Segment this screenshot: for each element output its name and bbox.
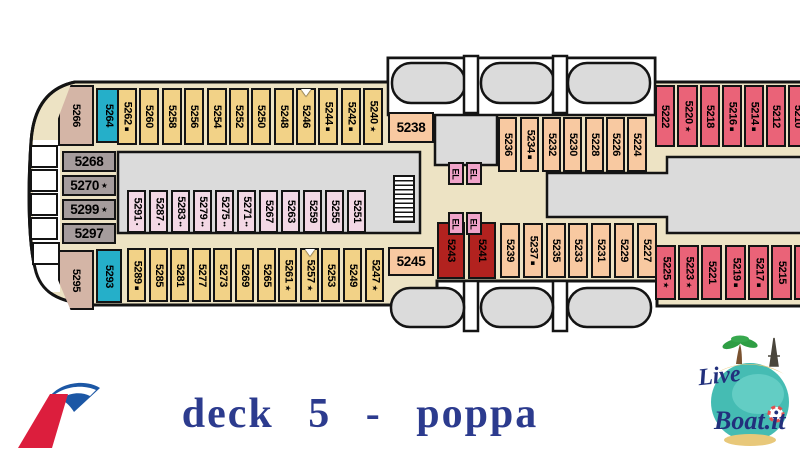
cabin-marker-icon: ■ (755, 283, 763, 288)
cabin-number: 5241 (477, 239, 488, 262)
cabin-marker-icon: • (155, 223, 163, 226)
cabin-5226[interactable]: 5226 (606, 117, 625, 172)
cabin-number: 5233 (573, 239, 584, 262)
cabin-marker-icon: ★ (371, 284, 379, 291)
cabin-number: 5263 (285, 200, 296, 223)
cabin-number: 5252 (234, 105, 245, 128)
triangle-marker-icon (301, 89, 311, 96)
cabin-number: 5210 (793, 104, 800, 127)
cabin-5223[interactable]: 5223★ (678, 245, 699, 300)
cabin-5251[interactable]: 5251 (347, 190, 366, 233)
deck-plan-page: 526652645262■526052585256525452525250524… (0, 0, 800, 457)
cabin-number: 5228 (589, 133, 600, 156)
cabin-5252[interactable]: 5252 (229, 88, 249, 145)
liveboat-text-boat: Boat.it (714, 408, 786, 434)
gray-block (435, 112, 497, 165)
cabin-number: 5287 (153, 198, 164, 221)
cabin-number: 5267 (263, 200, 274, 223)
cabin-number: 5283 (175, 196, 186, 219)
davit-post (464, 281, 478, 331)
cabin-5221[interactable]: 5221 (701, 245, 722, 300)
cabin-5269[interactable]: 5269 (235, 248, 254, 302)
cabin-5227[interactable]: 5227 (637, 223, 657, 278)
cabin-marker-icon: ■ (324, 127, 332, 132)
cabin-5281[interactable]: 5281 (170, 248, 189, 302)
cabin-number: 5248 (279, 105, 290, 128)
cabin-5287[interactable]: 5287• (149, 190, 168, 233)
cabin-5240[interactable]: 5240★ (363, 88, 383, 145)
cabin-5259[interactable]: 5259 (303, 190, 322, 233)
elevator-label: EL (450, 218, 460, 229)
cabin-number: 5249 (347, 263, 358, 286)
lifeboat (568, 288, 651, 327)
cabin-5261[interactable]: 5261★ (278, 248, 297, 302)
cabin-number: 5271 (241, 196, 252, 219)
cabin-number: 5251 (351, 200, 362, 223)
cabin-5222[interactable]: 5222 (655, 85, 675, 147)
cabin-number: 5285 (153, 263, 164, 286)
cabin-5257[interactable]: 5257★ (300, 248, 319, 302)
cabin-5275[interactable]: 5275•• (215, 190, 234, 233)
cabin-5215[interactable]: 5215 (771, 245, 792, 300)
cabin-5245[interactable]: 5245 (388, 247, 434, 276)
cabin-5283[interactable]: 5283•• (171, 190, 190, 233)
cabin-marker-icon: ■ (526, 155, 534, 160)
lifeboat (481, 288, 553, 327)
elevator-icon: EL (466, 212, 482, 235)
cabin-number: 5299 (70, 203, 99, 217)
cabin-marker-icon: •• (243, 222, 251, 227)
cabin-5213[interactable]: 5213 (794, 245, 800, 300)
liveboat-logo[interactable]: Live Boat.it (698, 330, 800, 457)
cabin-number: 5234 (524, 130, 535, 153)
cabin-marker-icon: ■ (728, 126, 736, 131)
cabin-number: 5225 (660, 256, 671, 279)
cabin-5220[interactable]: 5220★ (677, 85, 698, 147)
cabin-5235[interactable]: 5235 (546, 223, 566, 278)
cabin-marker-icon: ★ (284, 284, 292, 291)
cabin-marker-icon: ★ (101, 206, 108, 214)
cabin-5239[interactable]: 5239 (500, 223, 520, 278)
cabin-5247[interactable]: 5247★ (365, 248, 384, 302)
cabin-number: 5297 (75, 227, 104, 241)
cabin-5246[interactable]: 5246 (296, 88, 316, 145)
cabin-5299[interactable]: 5299★ (62, 199, 116, 220)
lifeboat (391, 288, 464, 327)
cabin-marker-icon: ■ (347, 127, 355, 132)
cabin-5263[interactable]: 5263 (281, 190, 300, 233)
elevator-label: EL (468, 218, 478, 229)
cabin-5279[interactable]: 5279•• (193, 190, 212, 233)
lifeboat (481, 63, 554, 103)
cabin-marker-icon: •• (177, 222, 185, 227)
cabin-marker-icon: ★ (369, 126, 377, 133)
cabin-5255[interactable]: 5255 (325, 190, 344, 233)
cabin-marker-icon: ■ (732, 283, 740, 288)
cabin-5291[interactable]: 5291• (127, 190, 146, 233)
cabin-number: 5219 (730, 258, 741, 281)
elevator-icon: EL (466, 162, 482, 185)
cabin-5285[interactable]: 5285 (149, 248, 168, 302)
cabin-number: 5261 (282, 259, 293, 282)
cabin-number: 5243 (446, 239, 457, 262)
cabin-5271[interactable]: 5271•• (237, 190, 256, 233)
cabin-marker-icon: ★ (101, 182, 108, 190)
carnival-logo (8, 382, 118, 452)
cabin-number: 5258 (167, 105, 178, 128)
cabin-number: 5246 (301, 105, 312, 128)
cabin-number: 5270 (70, 179, 99, 193)
cabin-5212[interactable]: 5212 (766, 85, 786, 147)
cabin-5267[interactable]: 5267 (259, 190, 278, 233)
cabin-5249[interactable]: 5249 (343, 248, 362, 302)
cabin-5260[interactable]: 5260 (139, 88, 159, 145)
cabin-number: 5216 (727, 101, 738, 124)
cabin-number: 5237 (528, 236, 539, 259)
cabin-5218[interactable]: 5218 (700, 85, 720, 147)
balcony (31, 170, 57, 191)
elevator-label: EL (450, 168, 460, 179)
cabin-marker-icon: ■ (123, 127, 131, 132)
cabin-number: 5230 (567, 133, 578, 156)
cabin-5214[interactable]: 5214■ (744, 85, 764, 147)
page-title: deck 5 - poppa (150, 390, 570, 438)
cabin-5248[interactable]: 5248 (274, 88, 294, 145)
cabin-number: 5224 (632, 133, 643, 156)
cabin-number: 5223 (683, 256, 694, 279)
cabin-number: 5236 (502, 133, 513, 156)
cabin-number: 5293 (104, 264, 115, 287)
stairs-icon (393, 175, 415, 223)
cabin-5238[interactable]: 5238 (388, 112, 434, 143)
triangle-marker-icon (305, 249, 315, 256)
cabin-number: 5229 (619, 239, 630, 262)
balcony (33, 243, 59, 264)
cabin-number: 5240 (368, 100, 379, 123)
cabin-5225[interactable]: 5225★ (655, 245, 676, 300)
cabin-number: 5231 (596, 239, 607, 262)
balcony (31, 146, 57, 167)
liveboat-globe (698, 330, 800, 457)
cabin-number: 5281 (174, 263, 185, 286)
cabin-marker-icon: ★ (684, 125, 692, 132)
cabin-number: 5257 (304, 259, 315, 282)
cabin-marker-icon: ■ (133, 285, 141, 290)
cabin-number: 5289 (131, 260, 142, 283)
cabin-number: 5227 (642, 239, 653, 262)
cabin-5242[interactable]: 5242■ (341, 88, 361, 145)
cabin-number: 5245 (397, 255, 426, 269)
cabin-marker-icon: ★ (306, 284, 314, 291)
eiffel-tower-icon (768, 338, 780, 366)
cabin-number: 5218 (705, 104, 716, 127)
cabin-number: 5247 (369, 259, 380, 282)
balcony (31, 218, 57, 239)
davit-post (553, 56, 567, 113)
cabin-marker-icon: • (133, 223, 141, 226)
cabin-5258[interactable]: 5258 (162, 88, 182, 145)
cabin-number: 5264 (103, 104, 114, 127)
cabin-number: 5244 (323, 102, 334, 125)
cabin-5216[interactable]: 5216■ (722, 85, 742, 147)
cabin-5229[interactable]: 5229 (614, 223, 634, 278)
balcony (31, 194, 57, 215)
cabin-number: 5220 (682, 100, 693, 123)
cabin-number: 5242 (346, 102, 357, 125)
cabin-number: 5226 (610, 133, 621, 156)
cabin-number: 5266 (71, 104, 82, 127)
cabin-number: 5295 (71, 268, 82, 291)
elevator-icon: EL (448, 212, 464, 235)
lifeboat (568, 63, 650, 103)
cabin-number: 5255 (329, 200, 340, 223)
cabin-5289[interactable]: 5289■ (127, 248, 146, 302)
cabin-5237[interactable]: 5237■ (523, 223, 543, 278)
davit-post (464, 56, 478, 113)
cabin-5232[interactable]: 5232 (542, 117, 561, 172)
cabin-5265[interactable]: 5265 (257, 248, 276, 302)
cabin-5219[interactable]: 5219■ (725, 245, 746, 300)
davit-post (553, 281, 567, 331)
cabin-5217[interactable]: 5217■ (748, 245, 769, 300)
cabin-number: 5262 (122, 102, 133, 125)
cabin-number: 5254 (212, 105, 223, 128)
liveboat-text-live: Live (697, 362, 742, 390)
cabin-number: 5273 (217, 263, 228, 286)
cabin-number: 5250 (256, 105, 267, 128)
cabin-number: 5215 (776, 261, 787, 284)
cabin-marker-icon: •• (221, 222, 229, 227)
cabin-5254[interactable]: 5254 (207, 88, 227, 145)
cabin-5268[interactable]: 5268 (62, 151, 116, 172)
funnel-red (18, 394, 68, 448)
cabin-5293[interactable]: 5293 (96, 249, 122, 303)
cabin-5224[interactable]: 5224 (627, 117, 647, 172)
cabin-5228[interactable]: 5228 (585, 117, 604, 172)
cabin-number: 5238 (397, 121, 426, 135)
cabin-5236[interactable]: 5236 (498, 117, 517, 172)
cabin-marker-icon: ■ (529, 261, 537, 266)
cabin-5253[interactable]: 5253 (321, 248, 340, 302)
cabin-number: 5217 (753, 258, 764, 281)
cabin-number: 5291 (131, 198, 142, 221)
cabin-number: 5212 (771, 104, 782, 127)
cabin-number: 5268 (75, 155, 104, 169)
cabin-5230[interactable]: 5230 (563, 117, 582, 172)
cabin-number: 5275 (219, 196, 230, 219)
cabin-5277[interactable]: 5277 (192, 248, 211, 302)
cabin-number: 5260 (144, 105, 155, 128)
cabin-number: 5265 (261, 263, 272, 286)
cabin-5233[interactable]: 5233 (568, 223, 588, 278)
cabin-5250[interactable]: 5250 (251, 88, 271, 145)
cabin-number: 5259 (307, 200, 318, 223)
cabin-5273[interactable]: 5273 (213, 248, 232, 302)
cabin-number: 5269 (239, 263, 250, 286)
cabin-5231[interactable]: 5231 (591, 223, 611, 278)
cabin-number: 5222 (660, 104, 671, 127)
cabin-marker-icon: ■ (750, 126, 758, 131)
cabin-number: 5232 (546, 133, 557, 156)
cabin-number: 5221 (706, 261, 717, 284)
cabin-5270[interactable]: 5270★ (62, 175, 116, 196)
cabin-number: 5279 (197, 196, 208, 219)
ship-structure (0, 0, 800, 457)
cabin-marker-icon: ★ (662, 282, 670, 289)
cabin-5262[interactable]: 5262■ (117, 88, 137, 145)
cabin-number: 5235 (551, 239, 562, 262)
cabin-number: 5277 (196, 263, 207, 286)
cabin-number: 5253 (325, 263, 336, 286)
elevator-label: EL (468, 168, 478, 179)
cabin-number: 5239 (505, 239, 516, 262)
cabin-5210[interactable]: 5210 (788, 85, 800, 147)
elevator-icon: EL (448, 162, 464, 185)
cabin-marker-icon: •• (199, 222, 207, 227)
cabin-5234[interactable]: 5234■ (520, 117, 539, 172)
lifeboat (392, 63, 465, 103)
cabin-number: 5256 (189, 105, 200, 128)
cabin-5297[interactable]: 5297 (62, 223, 116, 244)
cabin-5256[interactable]: 5256 (184, 88, 204, 145)
cabin-number: 5214 (749, 101, 760, 124)
cabin-5244[interactable]: 5244■ (318, 88, 338, 145)
cabin-marker-icon: ★ (685, 282, 693, 289)
